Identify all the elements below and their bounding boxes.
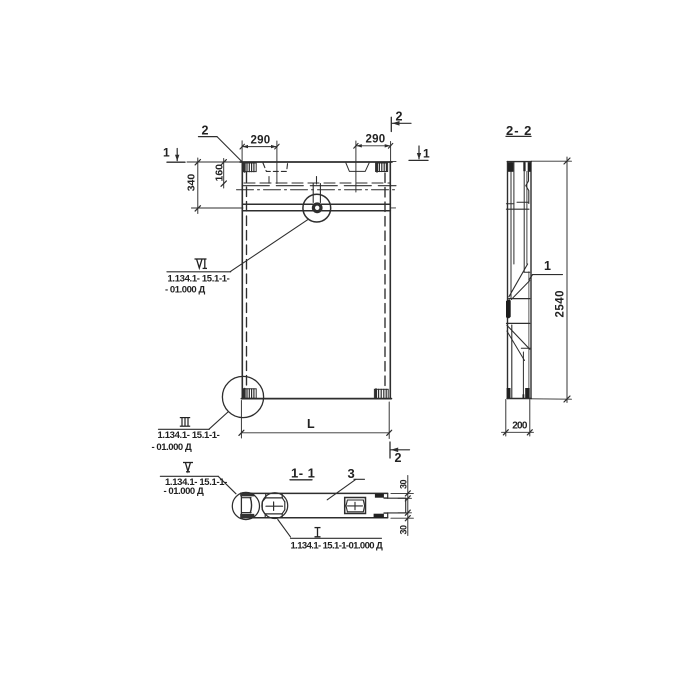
svg-text:200: 200 bbox=[512, 420, 528, 431]
svg-text:3: 3 bbox=[348, 466, 355, 481]
svg-text:- 01.000 Д: - 01.000 Д bbox=[152, 442, 192, 453]
svg-text:1.134.1- 15.1-1-: 1.134.1- 15.1-1- bbox=[158, 430, 220, 441]
svg-text:290: 290 bbox=[366, 134, 386, 146]
svg-text:1: 1 bbox=[163, 146, 170, 160]
svg-text:30: 30 bbox=[398, 525, 408, 535]
svg-text:2: 2 bbox=[396, 110, 403, 124]
svg-text:1: 1 bbox=[423, 147, 430, 161]
svg-text:2: 2 bbox=[395, 451, 402, 465]
svg-text:2: 2 bbox=[202, 124, 209, 138]
svg-text:1.134.1- 15.1-1-01.000 Д: 1.134.1- 15.1-1-01.000 Д bbox=[291, 541, 383, 552]
svg-text:160: 160 bbox=[213, 164, 225, 182]
svg-text:2- 2: 2- 2 bbox=[506, 123, 532, 138]
svg-text:290: 290 bbox=[251, 134, 271, 146]
svg-text:1: 1 bbox=[544, 259, 551, 273]
svg-text:30: 30 bbox=[398, 479, 408, 489]
svg-text:1- 1: 1- 1 bbox=[291, 466, 315, 481]
svg-text:340: 340 bbox=[185, 174, 197, 192]
svg-text:L: L bbox=[307, 417, 315, 431]
svg-text:1.134.1- 15.1-1-: 1.134.1- 15.1-1- bbox=[168, 273, 230, 284]
svg-text:- 01.000 Д: - 01.000 Д bbox=[164, 486, 204, 497]
svg-text:2540: 2540 bbox=[555, 290, 567, 318]
svg-text:- 01.000 Д: - 01.000 Д bbox=[165, 285, 205, 296]
